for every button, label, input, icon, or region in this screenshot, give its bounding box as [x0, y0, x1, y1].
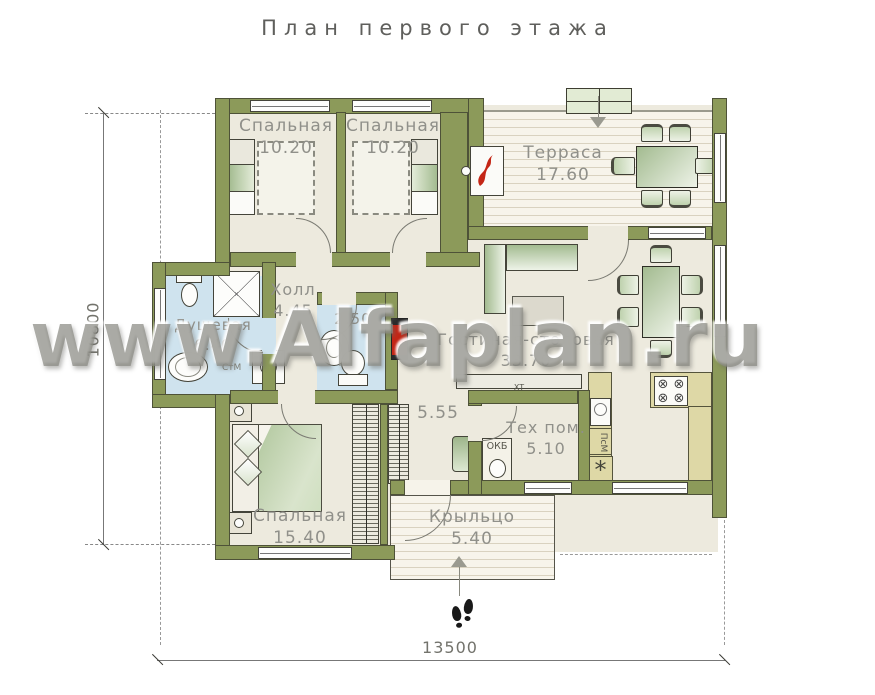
- wall-tech-top: [468, 390, 578, 404]
- boiler-drum: [489, 459, 506, 478]
- entry-arrow-icon: [451, 556, 467, 567]
- dishwasher: ПсМ: [589, 428, 612, 455]
- dim-line-horizontal: [157, 660, 725, 661]
- tech-door-opening: [468, 406, 482, 441]
- porch-label: Крыльцо 5.40: [412, 506, 532, 550]
- room-name: Спальная: [236, 115, 336, 137]
- nightstand-top-knob: [234, 406, 244, 416]
- bedroom3-label: Спальная 15.40: [245, 505, 355, 549]
- terrace-chair: [669, 124, 691, 142]
- terrace-steps: [566, 88, 632, 114]
- entry-footprint-right-icon: [463, 599, 474, 615]
- kitchen-window: [612, 482, 688, 494]
- terrace-chair: [641, 190, 663, 208]
- wall-bedroom2-right: [440, 112, 468, 259]
- axis-right: [724, 520, 725, 645]
- wall-tech-left-b: [468, 441, 482, 495]
- steps-divider-h: [567, 101, 631, 102]
- floor-plan: План первого этажа: [0, 0, 875, 695]
- room-area: 15.40: [245, 527, 355, 549]
- flame-icon: [477, 153, 497, 189]
- burner-icon: ⊗: [658, 392, 669, 405]
- wall-wardrobe-divider: [380, 404, 388, 545]
- terrace-door-opening: [588, 226, 628, 240]
- burner-icon: ⊗: [674, 392, 685, 405]
- bedroom2-door-opening: [390, 252, 426, 267]
- terrace-window-right: [714, 133, 726, 203]
- bedroom1-label: Спальная 10.20: [236, 115, 336, 159]
- wall-left-lower: [215, 394, 230, 560]
- terrace-label: Терраса 17.60: [500, 142, 626, 186]
- fireplace: [470, 146, 504, 196]
- dining-chair: [681, 275, 703, 295]
- room-name: Тех пом.: [504, 418, 588, 439]
- nightstand-bottom-knob: [234, 518, 244, 528]
- entry-arrow-stem: [459, 566, 460, 596]
- kitchen-sink-bowl: [594, 403, 607, 416]
- dining-chair: [617, 275, 639, 295]
- watermark: www.Alfaplan.ru: [30, 296, 850, 385]
- room-area: 5.55: [410, 402, 466, 424]
- entry-footprint-left-icon: [451, 605, 462, 621]
- terrace-chair: [641, 124, 663, 142]
- bedroom2-window: [352, 100, 432, 112]
- terrace-arrow-stem: [598, 96, 599, 118]
- room-area: 10.20: [343, 137, 443, 159]
- living-sofa-horizontal: [506, 244, 578, 271]
- room-area: 17.60: [500, 164, 626, 186]
- dishwasher-label: ПсМ: [598, 433, 607, 452]
- entrance-door-opening: [405, 480, 450, 495]
- kitchen-counter-right: [688, 406, 712, 482]
- room-area: 10.20: [236, 137, 336, 159]
- corridor-label: 5.55: [410, 402, 466, 424]
- wall-porch-stub: [390, 480, 405, 495]
- terrace-window-bottom: [648, 227, 706, 239]
- bedroom1-window: [250, 100, 330, 112]
- room-area: 5.40: [412, 528, 532, 550]
- tech-window: [524, 482, 572, 494]
- fireplace-knob: [461, 166, 471, 176]
- terrace-chair: [669, 190, 691, 208]
- bedroom2-label: Спальная 10.20: [343, 115, 443, 159]
- axis-bottom-right: [560, 554, 712, 555]
- wardrobe-bedroom3: [352, 404, 379, 544]
- terrace-arrow-icon: [590, 117, 606, 128]
- terrace-table: [636, 146, 698, 188]
- dim-width-label: 13500: [400, 638, 500, 657]
- tech-label: Тех пом. 5.10: [504, 418, 588, 460]
- dining-chair: [650, 245, 672, 263]
- room-name: Терраса: [500, 142, 626, 164]
- room-name: Спальная: [343, 115, 443, 137]
- fridge: *: [588, 456, 613, 482]
- bedroom3-door-opening: [278, 390, 315, 404]
- page-title: План первого этажа: [0, 16, 875, 40]
- room-area: 5.10: [504, 439, 588, 460]
- room-name: Крыльцо: [412, 506, 532, 528]
- wardrobe-corridor: [388, 404, 409, 484]
- bedroom1-door-opening: [296, 252, 332, 267]
- room-name: Спальная: [245, 505, 355, 527]
- wall-left-upper: [215, 98, 230, 276]
